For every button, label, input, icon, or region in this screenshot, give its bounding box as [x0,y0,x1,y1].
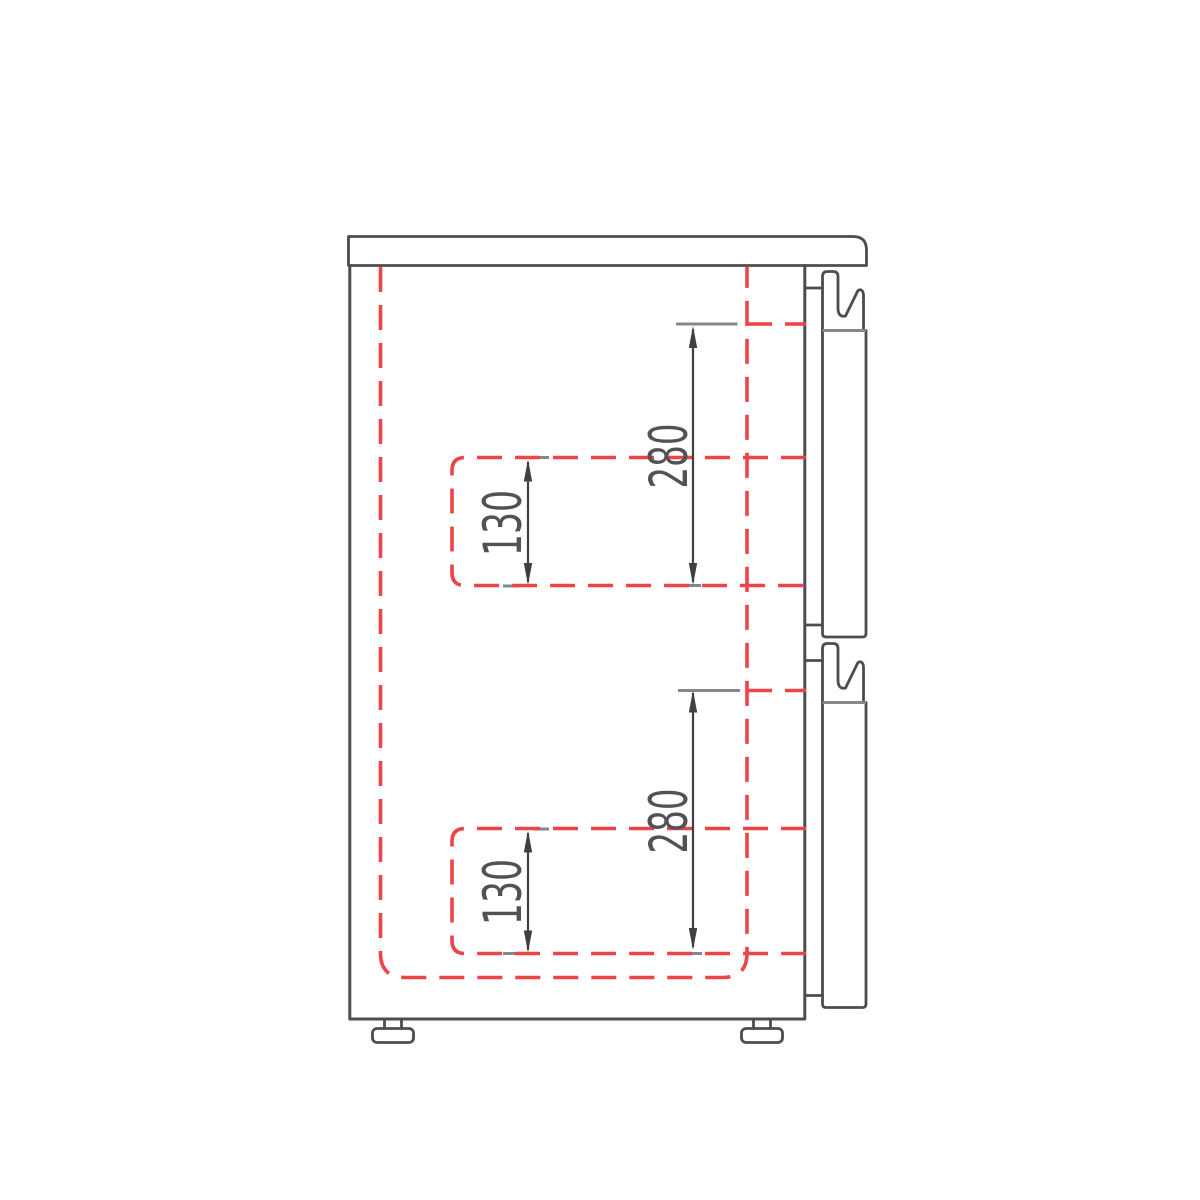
drawer-bottom-handle [823,644,864,705]
worktop [349,237,867,266]
drawer-top-front-panel [823,331,867,638]
dimension-label-280-top: 280 [639,424,700,489]
cabinet-body [350,266,805,1020]
drawing-canvas: 280 130 280 130 [0,0,1200,1200]
arrowhead-up-130-bottom [524,831,532,853]
arrowhead-up-280-bottom [689,691,697,713]
foot-left [373,1021,414,1043]
arrowhead-down-130-bottom [524,931,532,953]
drawer-bottom-front-panel [823,703,867,1008]
arrowhead-up-130-top [524,460,532,482]
dimension-label-280-bottom: 280 [639,789,700,854]
cabinet-technical-drawing: 280 130 280 130 [0,0,1200,1200]
dimension-label-130-bottom: 130 [473,859,534,925]
arrowheads-group [524,326,697,953]
foot-right [742,1021,783,1043]
drawer-top-handle [823,272,864,333]
dimension-labels-group: 280 130 280 130 [473,424,700,926]
drawer-bottom-mount-ticks [806,661,823,996]
arrowhead-down-280-top [689,563,697,585]
dimension-label-130-top: 130 [473,490,534,556]
arrowhead-up-280-top [689,326,697,348]
cabinet-outline-group [349,237,867,1043]
dimension-lines-group [528,329,693,950]
arrowhead-down-130-top [524,563,532,585]
drawer-top-mount-ticks [806,288,823,625]
arrowhead-down-280-bottom [689,928,697,950]
extension-lines-group [503,324,866,954]
red-dashed-group [381,267,807,978]
